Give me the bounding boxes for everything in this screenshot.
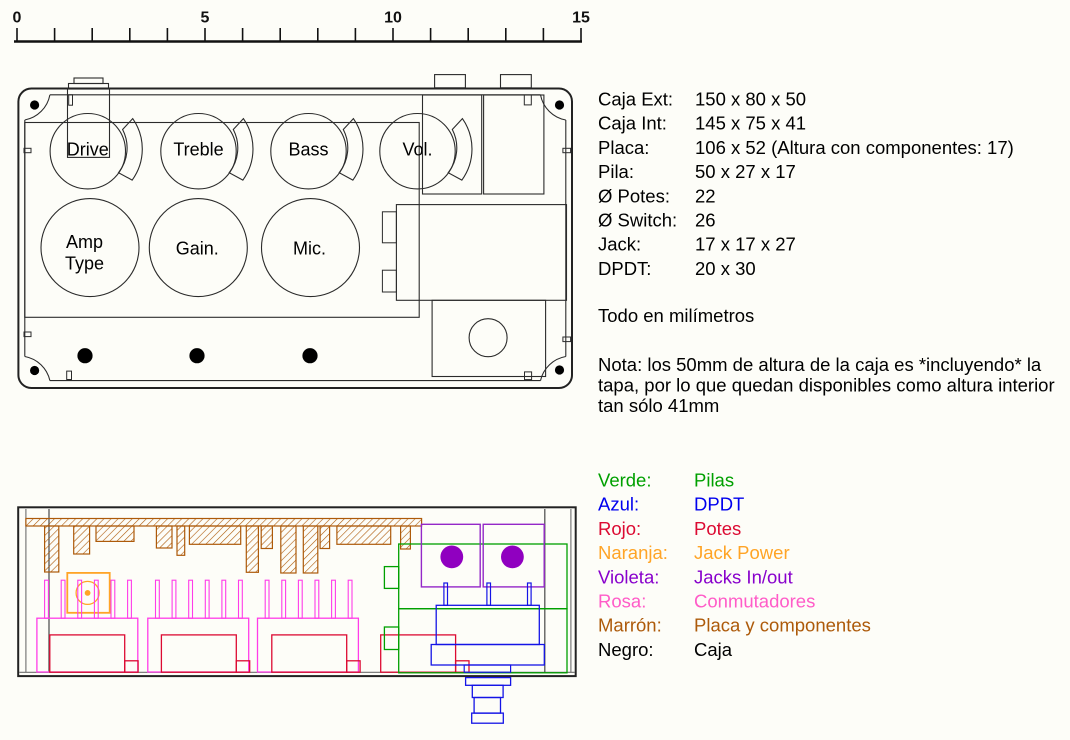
svg-text:106 x 52 (Altura con component: 106 x 52 (Altura con componentes: 17): [695, 137, 1014, 158]
svg-text:26: 26: [695, 210, 716, 231]
svg-text:Type: Type: [65, 254, 104, 274]
svg-text:Jack Power: Jack Power: [694, 542, 790, 563]
svg-text:Mic.: Mic.: [293, 239, 326, 259]
svg-text:Placa y componentes: Placa y componentes: [694, 615, 871, 636]
svg-text:Pila:: Pila:: [598, 161, 634, 182]
svg-text:15: 15: [572, 10, 590, 27]
svg-text:tan sólo 41mm: tan sólo 41mm: [598, 395, 719, 416]
svg-text:Marrón:: Marrón:: [598, 615, 662, 636]
svg-text:150 x 80 x 50: 150 x 80 x 50: [695, 89, 806, 110]
svg-text:Ø Potes:: Ø Potes:: [598, 185, 670, 206]
svg-text:Pilas: Pilas: [694, 470, 734, 491]
svg-text:Caja Int:: Caja Int:: [598, 113, 667, 134]
svg-text:20 x 30: 20 x 30: [695, 258, 756, 279]
svg-text:Jack:: Jack:: [598, 234, 641, 255]
svg-text:50 x 27 x 17: 50 x 27 x 17: [695, 161, 796, 182]
svg-text:Rosa:: Rosa:: [598, 591, 646, 612]
svg-text:Conmutadores: Conmutadores: [694, 591, 815, 612]
svg-text:145 x 75 x 41: 145 x 75 x 41: [695, 113, 806, 134]
svg-text:Amp: Amp: [66, 232, 103, 252]
svg-text:Naranja:: Naranja:: [598, 542, 668, 563]
svg-text:Negro:: Negro:: [598, 639, 654, 660]
svg-text:Drive: Drive: [67, 140, 109, 160]
svg-text:22: 22: [695, 185, 716, 206]
svg-text:Jacks In/out: Jacks In/out: [694, 566, 793, 587]
svg-text:Bass: Bass: [288, 140, 328, 160]
svg-text:Violeta:: Violeta:: [598, 566, 659, 587]
svg-text:Verde:: Verde:: [598, 470, 652, 491]
svg-text:Caja: Caja: [694, 639, 733, 660]
svg-text:5: 5: [201, 10, 210, 27]
svg-text:DPDT:: DPDT:: [598, 258, 651, 279]
svg-text:Ø Switch:: Ø Switch:: [598, 210, 677, 231]
svg-text:Placa:: Placa:: [598, 137, 649, 158]
svg-text:Potes: Potes: [694, 518, 741, 539]
svg-text:Treble: Treble: [173, 140, 223, 160]
svg-text:0: 0: [13, 10, 22, 27]
svg-text:Azul:: Azul:: [598, 494, 639, 515]
svg-text:DPDT: DPDT: [694, 494, 744, 515]
svg-text:Nota: los 50mm de altura de la: Nota: los 50mm de altura de la caja es *…: [598, 354, 1042, 375]
svg-text:Rojo:: Rojo:: [598, 518, 641, 539]
svg-text:10: 10: [384, 10, 402, 27]
svg-text:17 x 17 x 27: 17 x 17 x 27: [695, 234, 796, 255]
svg-text:Caja Ext:: Caja Ext:: [598, 89, 673, 110]
svg-text:Gain.: Gain.: [176, 239, 219, 259]
svg-text:tapa, por lo que quedan dispon: tapa, por lo que quedan disponibles como…: [598, 375, 1055, 396]
svg-text:Vol.: Vol.: [402, 140, 432, 160]
svg-text:Todo en milímetros: Todo en milímetros: [598, 305, 754, 326]
